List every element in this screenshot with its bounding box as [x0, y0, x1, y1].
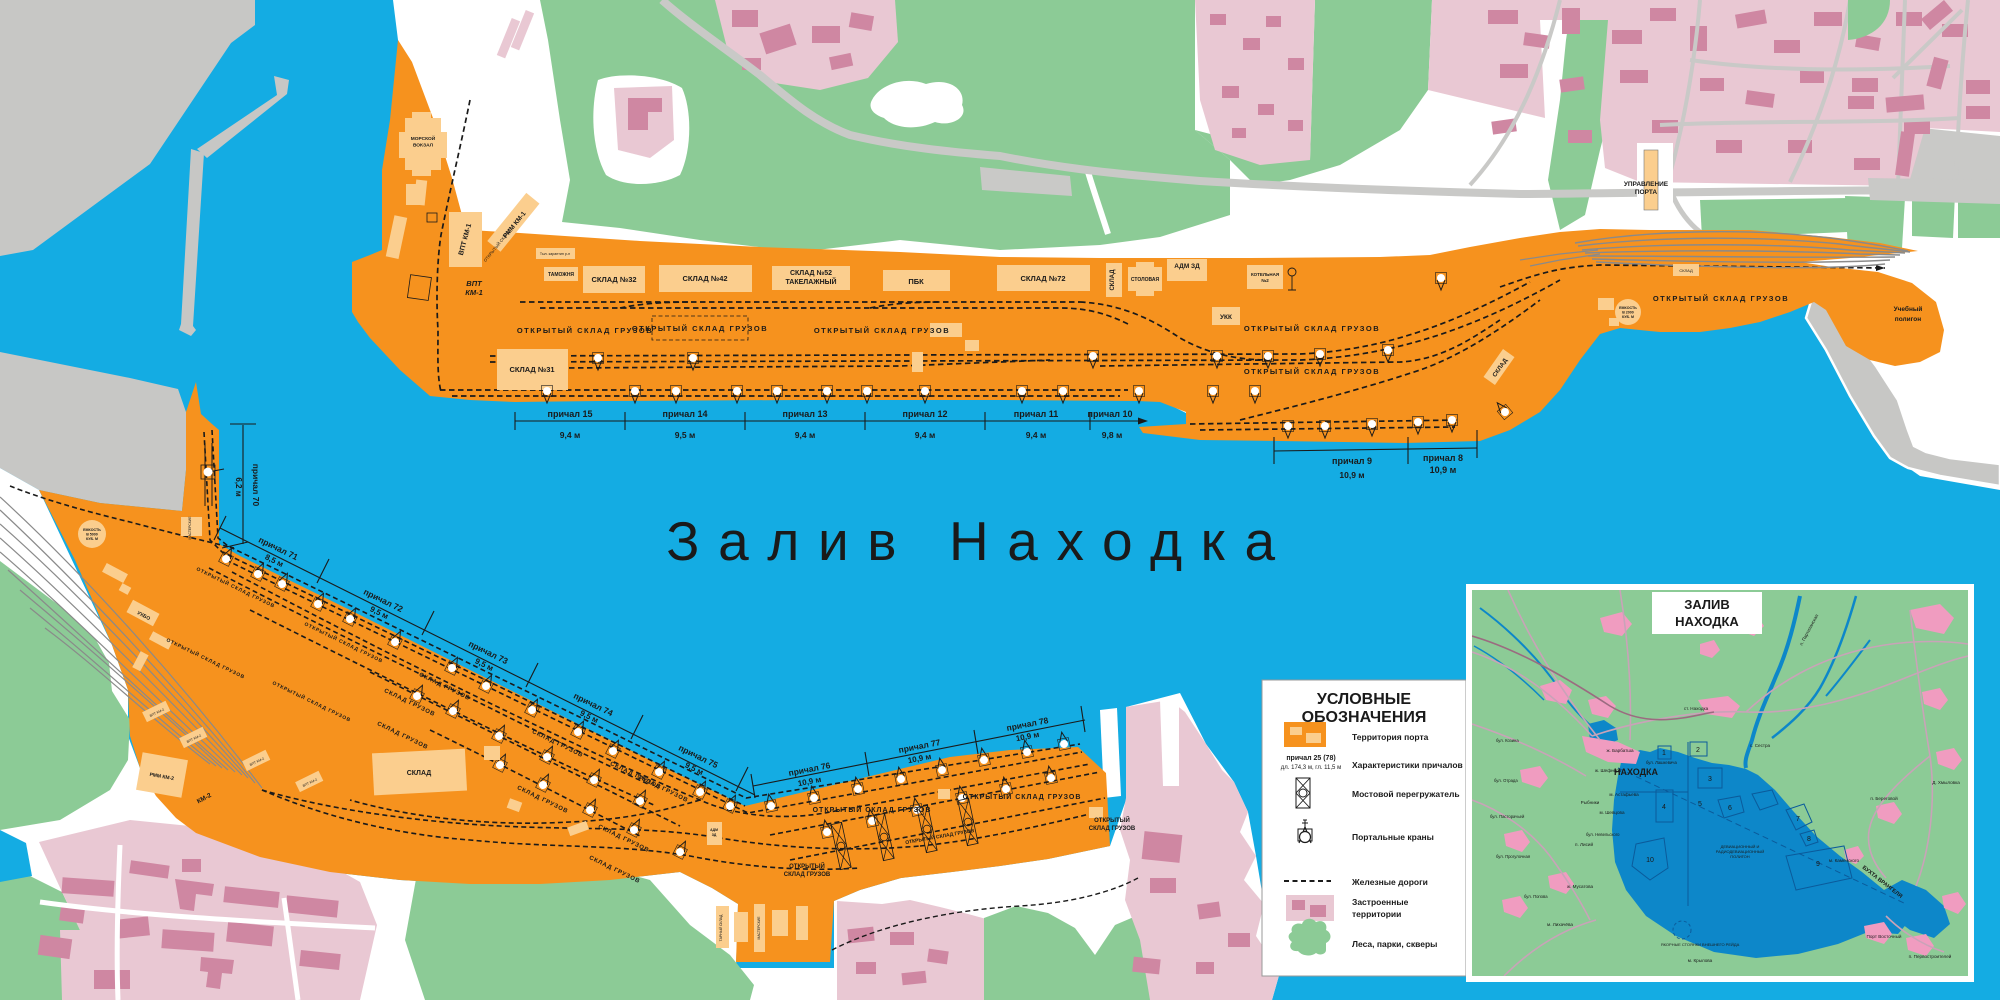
svg-text:причал 12: причал 12	[903, 409, 948, 419]
svg-text:10: 10	[1646, 857, 1654, 864]
svg-text:Территория порта: Территория порта	[1352, 732, 1429, 742]
svg-text:ОТКРЫТЫЙ СКЛАД ГРУЗОВ: ОТКРЫТЫЙ СКЛАД ГРУЗОВ	[1653, 294, 1789, 303]
svg-text:7: 7	[1796, 816, 1800, 823]
svg-text:КОТЕЛЬНАЯ: КОТЕЛЬНАЯ	[1251, 272, 1279, 277]
svg-text:СКЛАД ГРУЗОВ: СКЛАД ГРУЗОВ	[1089, 826, 1136, 832]
svg-text:МАСТЕРСКИЕ: МАСТЕРСКИЕ	[188, 516, 192, 540]
svg-text:бул. Прогулочная: бул. Прогулочная	[1496, 854, 1530, 859]
svg-text:СКЛАД ГРУЗОВ: СКЛАД ГРУЗОВ	[784, 872, 831, 878]
svg-text:Порт Восточный: Порт Восточный	[1867, 933, 1902, 939]
svg-text:ЯКОРНЫЕ СТОЯНКИ ВНЕШНЕГО РЕЙДА: ЯКОРНЫЕ СТОЯНКИ ВНЕШНЕГО РЕЙДА	[1661, 942, 1740, 947]
svg-text:ПБК: ПБК	[908, 277, 924, 286]
svg-text:4: 4	[1662, 804, 1666, 811]
svg-text:бул. Лашкевича: бул. Лашкевича	[1646, 760, 1677, 765]
svg-text:ОТКРЫТЫЙ СКЛАД ГРУЗОВ: ОТКРЫТЫЙ СКЛАД ГРУЗОВ	[813, 805, 932, 814]
svg-text:ВПТ: ВПТ	[466, 279, 483, 288]
svg-text:УСЛОВНЫЕ: УСЛОВНЫЕ	[1317, 691, 1412, 708]
svg-text:3: 3	[1708, 776, 1712, 783]
svg-text:ж. Барбатша: ж. Барбатша	[1606, 748, 1634, 753]
svg-text:ОТКРЫТЫЙ СКЛАД ГРУЗОВ: ОТКРЫТЫЙ СКЛАД ГРУЗОВ	[963, 792, 1082, 801]
svg-text:КМ-1: КМ-1	[465, 288, 483, 297]
svg-text:Характеристики причалов: Характеристики причалов	[1352, 760, 1463, 770]
svg-text:ПОРТА: ПОРТА	[1635, 189, 1658, 196]
svg-text:ОТКРЫТЫЙ СКЛАД ГРУЗОВ: ОТКРЫТЫЙ СКЛАД ГРУЗОВ	[632, 324, 768, 333]
svg-text:10,9 м: 10,9 м	[1339, 470, 1364, 480]
svg-text:СКЛАД: СКЛАД	[1679, 268, 1693, 273]
svg-text:Леса, парки, скверы: Леса, парки, скверы	[1352, 939, 1437, 949]
svg-text:причал 11: причал 11	[1014, 409, 1058, 419]
svg-text:м. Астафьева: м. Астафьева	[1609, 792, 1639, 797]
svg-text:м. Шевцова: м. Шевцова	[1600, 810, 1625, 815]
svg-text:МАСТЕРСКИЕ: МАСТЕРСКИЕ	[757, 916, 761, 940]
svg-text:ТАКЕЛАЖНЫЙ: ТАКЕЛАЖНЫЙ	[785, 277, 836, 286]
svg-text:причал 8: причал 8	[1423, 453, 1463, 463]
svg-text:ПОЛИГОН: ПОЛИГОН	[1730, 854, 1749, 859]
svg-text:ОТКРЫТЫЙ: ОТКРЫТЫЙ	[789, 862, 825, 870]
svg-text:п. Лисий: п. Лисий	[1575, 841, 1593, 847]
svg-text:ОТКРЫТЫЙ: ОТКРЫТЫЙ	[1094, 816, 1130, 824]
svg-text:№2: №2	[1261, 278, 1269, 283]
svg-text:СКЛАД №32: СКЛАД №32	[591, 275, 636, 284]
svg-text:8: 8	[1807, 836, 1811, 843]
svg-text:ОТКРЫТЫЙ СКЛАД ГРУЗОВ: ОТКРЫТЫЙ СКЛАД ГРУЗОВ	[1244, 367, 1380, 376]
svg-text:9,4 м: 9,4 м	[915, 430, 935, 440]
svg-text:Застроенные: Застроенные	[1352, 897, 1409, 907]
svg-text:НАХОДКА: НАХОДКА	[1614, 767, 1659, 777]
svg-text:2: 2	[1696, 747, 1700, 754]
svg-text:Рыбники: Рыбники	[1581, 800, 1600, 805]
svg-text:причал 25 (78): причал 25 (78)	[1286, 755, 1335, 762]
svg-text:причал 10: причал 10	[1088, 409, 1133, 419]
svg-text:ТАМОЖНЯ: ТАМОЖНЯ	[548, 272, 574, 278]
svg-text:УКК: УКК	[1220, 314, 1232, 321]
svg-text:Учебный: Учебный	[1894, 305, 1923, 313]
svg-text:СТОЛОВАЯ: СТОЛОВАЯ	[1131, 277, 1160, 283]
svg-text:м. Крылова: м. Крылова	[1688, 958, 1713, 963]
svg-text:КУБ. М: КУБ. М	[1622, 315, 1634, 319]
svg-text:ж. Мусатова: ж. Мусатова	[1567, 884, 1593, 889]
svg-text:бул. Отрада: бул. Отрада	[1494, 778, 1518, 783]
svg-text:п. Первостроителей: п. Первостроителей	[1909, 953, 1952, 959]
svg-text:1: 1	[1662, 750, 1666, 757]
svg-text:Д. Хмыловка: Д. Хмыловка	[1932, 780, 1960, 785]
svg-text:с. Сестра: с. Сестра	[1750, 743, 1771, 748]
svg-text:В 2000: В 2000	[1622, 311, 1634, 315]
svg-text:СКЛАД №42: СКЛАД №42	[682, 274, 727, 283]
svg-text:СКЛАД: СКЛАД	[1110, 269, 1116, 291]
svg-text:Тыл. карантин р-н: Тыл. карантин р-н	[540, 252, 570, 256]
svg-text:ЗД: ЗД	[712, 833, 717, 837]
svg-text:полигон: полигон	[1895, 316, 1921, 323]
svg-text:бул. Попова: бул. Попова	[1524, 894, 1548, 899]
svg-text:ОТКРЫТЫЙ СКЛАД ГРУЗОВ: ОТКРЫТЫЙ СКЛАД ГРУЗОВ	[1244, 324, 1380, 333]
svg-text:СКЛАД: СКЛАД	[407, 770, 432, 777]
svg-text:бул. Пасторачьей: бул. Пасторачьей	[1490, 814, 1525, 819]
svg-text:КУБ. М: КУБ. М	[86, 537, 98, 541]
svg-text:бул. Козина: бул. Козина	[1496, 738, 1519, 743]
svg-text:причал 13: причал 13	[783, 409, 828, 419]
svg-text:причал 14: причал 14	[663, 409, 708, 419]
svg-text:Залив Находка: Залив Находка	[666, 510, 1293, 572]
svg-text:ЗАЛИВ: ЗАЛИВ	[1684, 597, 1730, 612]
svg-text:м. Каменского: м. Каменского	[1829, 858, 1860, 863]
svg-text:9,4 м: 9,4 м	[795, 430, 815, 440]
svg-text:6,2 м: 6,2 м	[234, 477, 243, 496]
svg-text:Портальные краны: Портальные краны	[1352, 832, 1434, 842]
svg-text:причал 9: причал 9	[1332, 456, 1372, 466]
svg-text:причал 15: причал 15	[548, 409, 593, 419]
svg-text:причал 70: причал 70	[251, 464, 261, 507]
svg-text:ОТКРЫТЫЙ СКЛАД ГРУЗОВ: ОТКРЫТЫЙ СКЛАД ГРУЗОВ	[814, 326, 950, 335]
svg-text:ЕМКОСТЬ: ЕМКОСТЬ	[1619, 306, 1637, 310]
svg-text:10,9 м: 10,9 м	[1430, 465, 1457, 475]
svg-text:9,8 м: 9,8 м	[1102, 430, 1122, 440]
svg-text:Железные дороги: Железные дороги	[1351, 877, 1428, 887]
svg-text:9: 9	[1816, 861, 1820, 868]
svg-text:В 5000: В 5000	[86, 533, 98, 537]
svg-text:территории: территории	[1352, 909, 1401, 919]
svg-text:6: 6	[1728, 805, 1732, 812]
svg-text:ЕМКОСТЬ: ЕМКОСТЬ	[83, 528, 101, 532]
svg-text:ТАРНЫЙ СКЛАД: ТАРНЫЙ СКЛАД	[719, 914, 723, 941]
svg-text:п. Береговой: п. Береговой	[1870, 795, 1898, 801]
svg-text:5: 5	[1698, 801, 1702, 808]
svg-text:9,4 м: 9,4 м	[560, 430, 580, 440]
svg-text:9,5 м: 9,5 м	[675, 430, 695, 440]
svg-text:бул. Невельского: бул. Невельского	[1586, 832, 1620, 837]
svg-text:НАХОДКА: НАХОДКА	[1675, 614, 1739, 629]
svg-text:СКЛАД №52: СКЛАД №52	[790, 269, 832, 277]
svg-text:ВОКЗАЛ: ВОКЗАЛ	[413, 143, 434, 149]
svg-text:ст. Находка: ст. Находка	[1684, 706, 1709, 711]
svg-text:9,4 м: 9,4 м	[1026, 430, 1046, 440]
svg-text:СКЛАД №31: СКЛАД №31	[509, 365, 554, 374]
svg-text:м. Лихачёва: м. Лихачёва	[1547, 922, 1573, 927]
svg-text:АДМ ЗД: АДМ ЗД	[1174, 263, 1200, 270]
svg-text:СКЛАД №72: СКЛАД №72	[1020, 274, 1065, 283]
svg-text:Мостовой перегружатель: Мостовой перегружатель	[1352, 789, 1460, 799]
svg-text:УПРАВЛЕНИЕ: УПРАВЛЕНИЕ	[1624, 181, 1669, 188]
svg-text:АДМ: АДМ	[710, 828, 718, 832]
svg-text:дл. 174,3 м, гл. 11,5 м: дл. 174,3 м, гл. 11,5 м	[1281, 765, 1341, 771]
